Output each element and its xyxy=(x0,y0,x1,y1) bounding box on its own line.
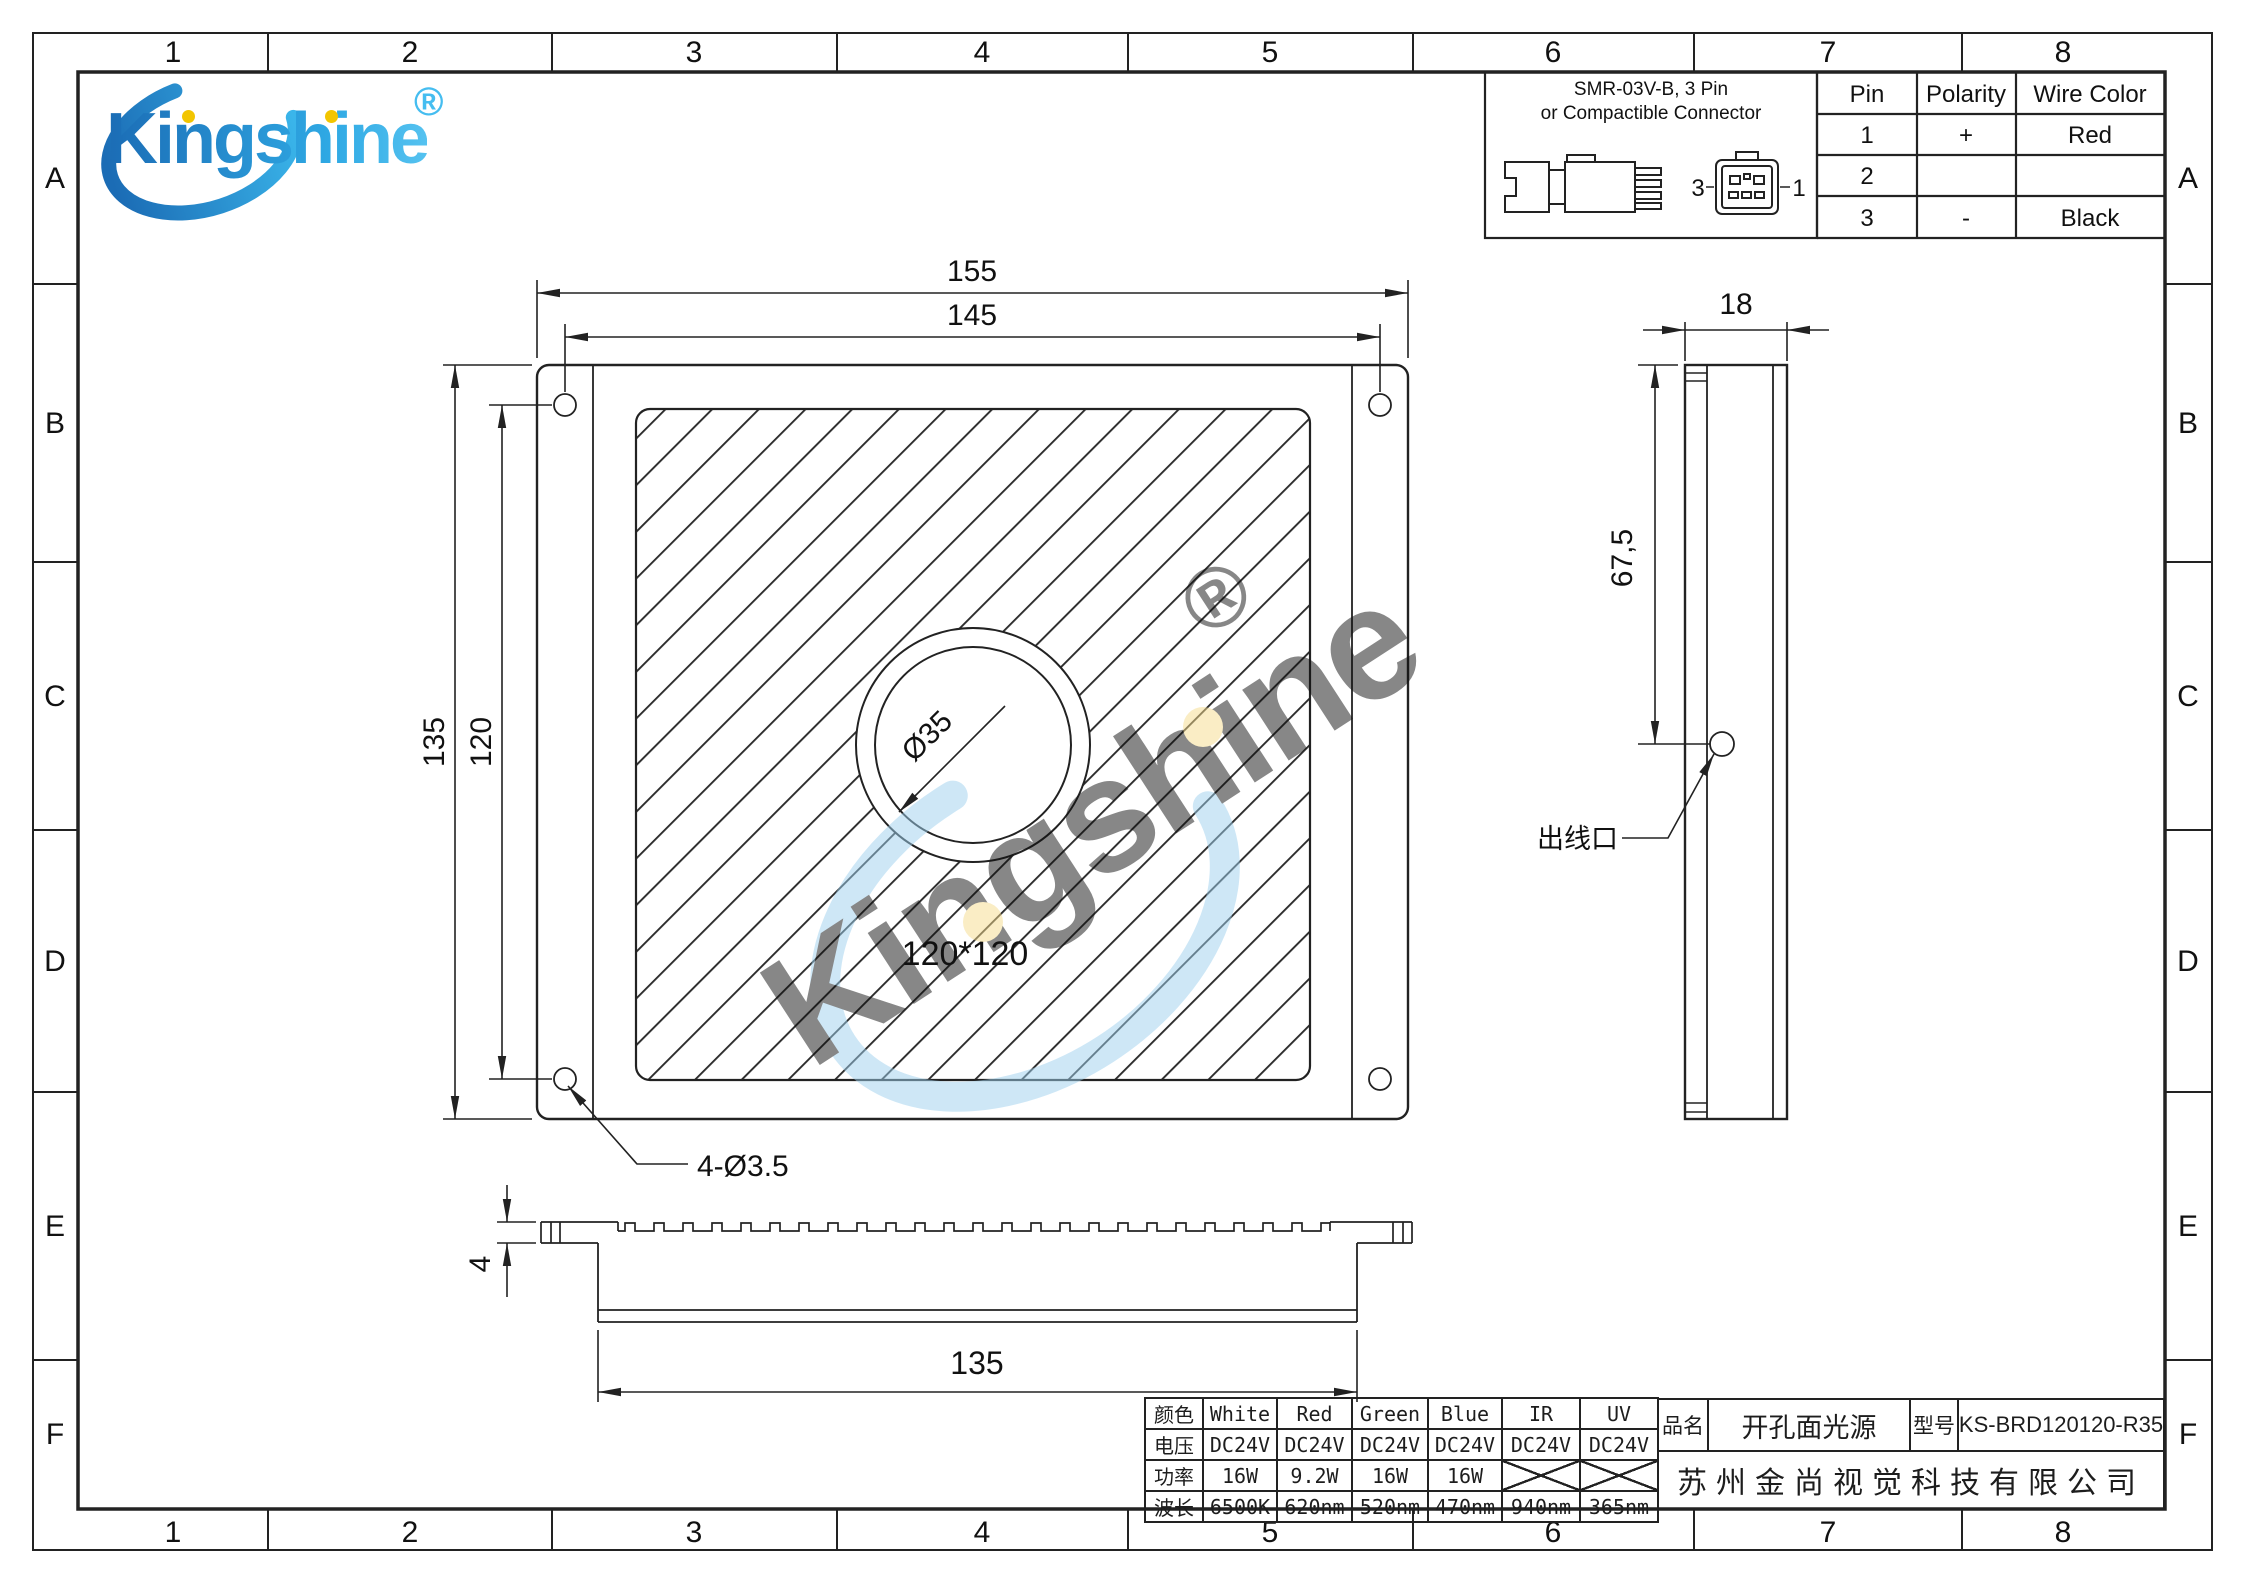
dim-67-5: 67,5 xyxy=(1606,529,1639,587)
col-label-bottom: 4 xyxy=(974,1516,991,1549)
spec-cell: 波长 xyxy=(1145,1491,1203,1522)
dim-120: 120 xyxy=(465,717,498,767)
logo-i-dot-icon xyxy=(182,110,195,123)
drawing-canvas: 1 2 3 4 5 6 7 8 1 2 3 4 5 6 7 8 A B C D … xyxy=(0,0,2245,1587)
row-label-right: C xyxy=(2177,680,2199,713)
row-label-right: E xyxy=(2178,1210,2198,1243)
socket-pin1-label: 1 xyxy=(1792,175,1805,202)
connector-plug-icon xyxy=(1505,155,1661,212)
connector-title-line1: SMR-03V-B, 3 Pin xyxy=(1574,79,1728,100)
pin-cell: 2 xyxy=(1860,163,1873,190)
title-block: 品名 开孔面光源 型号 KS-BRD120120-R35 苏州金尚视觉科技有限公… xyxy=(1657,1398,2165,1510)
spec-cell: Blue xyxy=(1428,1398,1502,1429)
col-label-top: 3 xyxy=(686,36,703,69)
pin-cell: 1 xyxy=(1860,122,1873,149)
spec-cell: 16W xyxy=(1428,1460,1502,1491)
dim-mount-holes: 4-Ø3.5 xyxy=(697,1150,789,1183)
model-value: KS-BRD120120-R35 xyxy=(1959,1400,2163,1450)
connector-title: SMR-03V-B, 3 Pin or Compactible Connecto… xyxy=(1541,79,1762,124)
spec-cell: 620nm xyxy=(1277,1491,1352,1522)
spec-cell: 470nm xyxy=(1428,1491,1502,1522)
row-label-right: F xyxy=(2179,1418,2197,1451)
logo-wordmark: Kingshine xyxy=(106,98,427,180)
pin-table-text: Pin Polarity Wire Color 1 + Red 2 3 - Bl… xyxy=(1850,81,2147,232)
drawing-sheet: 1 2 3 4 5 6 7 8 1 2 3 4 5 6 7 8 A B C D … xyxy=(0,0,2245,1587)
spec-cell: DC24V xyxy=(1203,1429,1277,1460)
pin-cell: Red xyxy=(2068,122,2112,149)
col-label-top: 8 xyxy=(2055,36,2072,69)
polarity-header: Polarity xyxy=(1926,81,2006,108)
spec-cell: DC24V xyxy=(1502,1429,1580,1460)
dim-135-bottom: 135 xyxy=(950,1345,1003,1381)
spec-cell-crossed xyxy=(1502,1460,1580,1491)
col-label-bottom: 1 xyxy=(165,1516,182,1549)
wire-outlet-hole xyxy=(1710,732,1734,756)
spec-cell: 9.2W xyxy=(1277,1460,1352,1491)
pin-header: Pin xyxy=(1850,81,1885,108)
connector-title-line2: or Compactible Connector xyxy=(1541,103,1762,124)
wirecolor-header: Wire Color xyxy=(2033,81,2146,108)
spec-cell: 940nm xyxy=(1502,1491,1580,1522)
logo-i-dot-icon xyxy=(325,110,338,123)
logo-registered-icon: ® xyxy=(414,80,443,125)
bottom-dimensions xyxy=(497,1185,1357,1402)
spec-row-color: 颜色 White Red Green Blue IR UV xyxy=(1145,1398,1658,1429)
col-label-top: 7 xyxy=(1820,36,1837,69)
col-label-top: 5 xyxy=(1262,36,1279,69)
row-label-left: B xyxy=(45,407,65,440)
spec-cell: 365nm xyxy=(1580,1491,1658,1522)
row-label-right: B xyxy=(2178,407,2198,440)
row-label-right: A xyxy=(2178,162,2198,195)
model-label: 型号 xyxy=(1911,1400,1959,1450)
spec-table: 颜色 White Red Green Blue IR UV 电压 DC24V D… xyxy=(1144,1397,1657,1510)
dim-135-front: 135 xyxy=(418,717,451,767)
spec-cell: White xyxy=(1203,1398,1277,1429)
spec-cell: Green xyxy=(1352,1398,1428,1429)
dim-18: 18 xyxy=(1719,288,1752,321)
spec-cell: DC24V xyxy=(1428,1429,1502,1460)
spec-cell: 16W xyxy=(1203,1460,1277,1491)
spec-cell: UV xyxy=(1580,1398,1658,1429)
dim-4: 4 xyxy=(464,1256,497,1273)
spec-cell: 520nm xyxy=(1352,1491,1428,1522)
product-name-value: 开孔面光源 xyxy=(1709,1400,1911,1450)
socket-pin3-label: 3 xyxy=(1691,175,1704,202)
connector-socket-icon xyxy=(1706,152,1790,214)
row-label-left: F xyxy=(46,1418,64,1451)
col-label-bottom: 7 xyxy=(1820,1516,1837,1549)
row-label-right: D xyxy=(2177,945,2199,978)
row-label-left: D xyxy=(44,945,66,978)
spec-cell: 6500K xyxy=(1203,1491,1277,1522)
row-label-left: E xyxy=(45,1210,65,1243)
side-view: 18 67,5 出线口 xyxy=(1537,288,1829,1119)
pin-cell: + xyxy=(1959,122,1973,149)
spec-cell: DC24V xyxy=(1352,1429,1428,1460)
side-dimensions xyxy=(1622,322,1829,838)
col-label-top: 6 xyxy=(1545,36,1562,69)
pin-cell: Black xyxy=(2061,205,2121,232)
company-name: 苏州金尚视觉科技有限公司 xyxy=(1659,1452,2163,1507)
row-label-left: C xyxy=(44,680,66,713)
spec-cell: IR xyxy=(1502,1398,1580,1429)
spec-row-wavelength: 波长 6500K 620nm 520nm 470nm 940nm 365nm xyxy=(1145,1491,1658,1522)
spec-cell: DC24V xyxy=(1580,1429,1658,1460)
wire-outlet-label: 出线口 xyxy=(1537,824,1618,854)
spec-cell: Red xyxy=(1277,1398,1352,1429)
product-name-label: 品名 xyxy=(1659,1400,1709,1450)
col-label-bottom: 3 xyxy=(686,1516,703,1549)
col-label-bottom: 8 xyxy=(2055,1516,2072,1549)
spec-cell: DC24V xyxy=(1277,1429,1352,1460)
dim-145: 145 xyxy=(947,299,997,332)
luminous-area-label: 120*120 xyxy=(902,935,1029,973)
spec-cell: 功率 xyxy=(1145,1460,1203,1491)
dim-155: 155 xyxy=(947,255,997,288)
spec-cell-crossed xyxy=(1580,1460,1658,1491)
row-label-left: A xyxy=(45,162,65,195)
spec-cell: 电压 xyxy=(1145,1429,1203,1460)
col-label-top: 4 xyxy=(974,36,991,69)
spec-cell: 16W xyxy=(1352,1460,1428,1491)
pin-cell: 3 xyxy=(1860,205,1873,232)
spec-cell: 颜色 xyxy=(1145,1398,1203,1429)
kingshine-logo: Kingshine ® xyxy=(92,62,452,222)
spec-row-voltage: 电压 DC24V DC24V DC24V DC24V DC24V DC24V xyxy=(1145,1429,1658,1460)
col-label-bottom: 2 xyxy=(402,1516,419,1549)
front-view: 155 145 135 120 Ø35 120*120 4-Ø3.5 xyxy=(418,255,1408,1183)
spec-row-power: 功率 16W 9.2W 16W 16W xyxy=(1145,1460,1658,1491)
pin-cell: - xyxy=(1962,205,1970,232)
